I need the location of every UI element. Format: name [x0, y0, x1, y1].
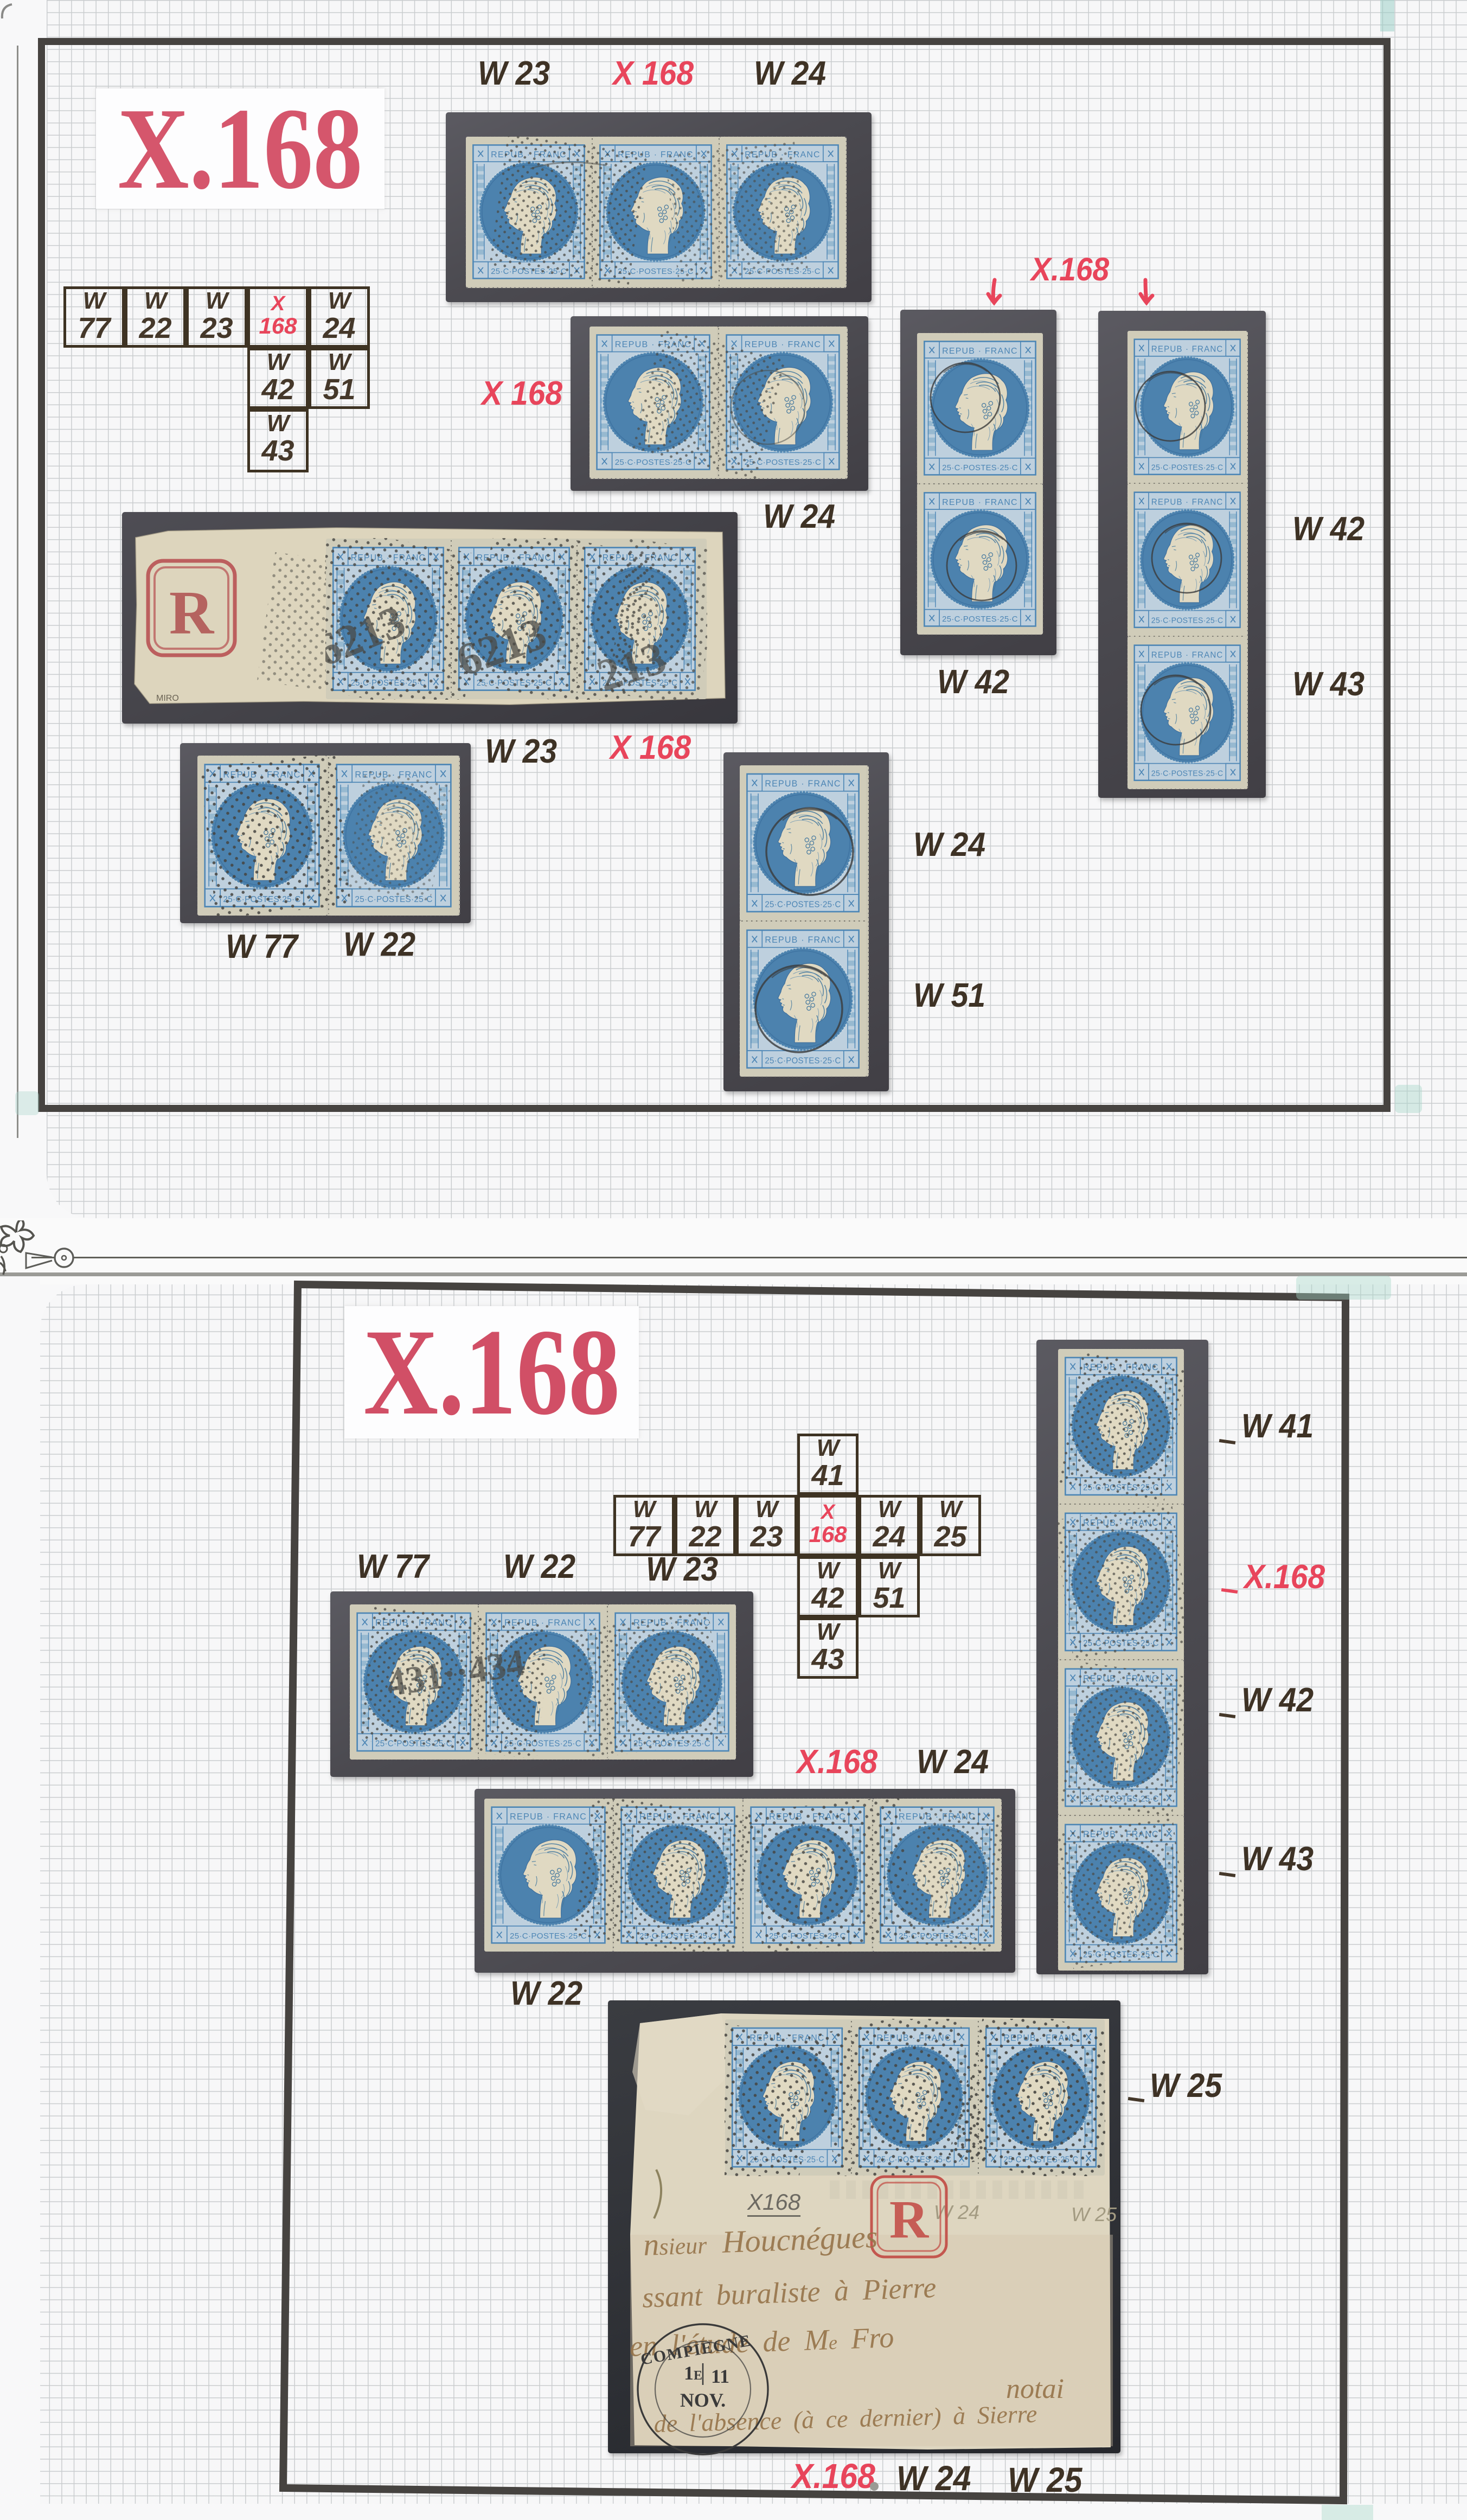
svg-text:NOV.: NOV.	[680, 2389, 726, 2411]
svg-text:R: R	[889, 2189, 930, 2249]
svg-text:R: R	[169, 578, 215, 647]
svg-text:11: 11	[711, 2365, 729, 2387]
svg-text:1E: 1E	[684, 2362, 702, 2384]
svg-text:COMPIEGNE: COMPIEGNE	[639, 2331, 753, 2368]
svg-text:MIRO: MIRO	[156, 694, 179, 703]
